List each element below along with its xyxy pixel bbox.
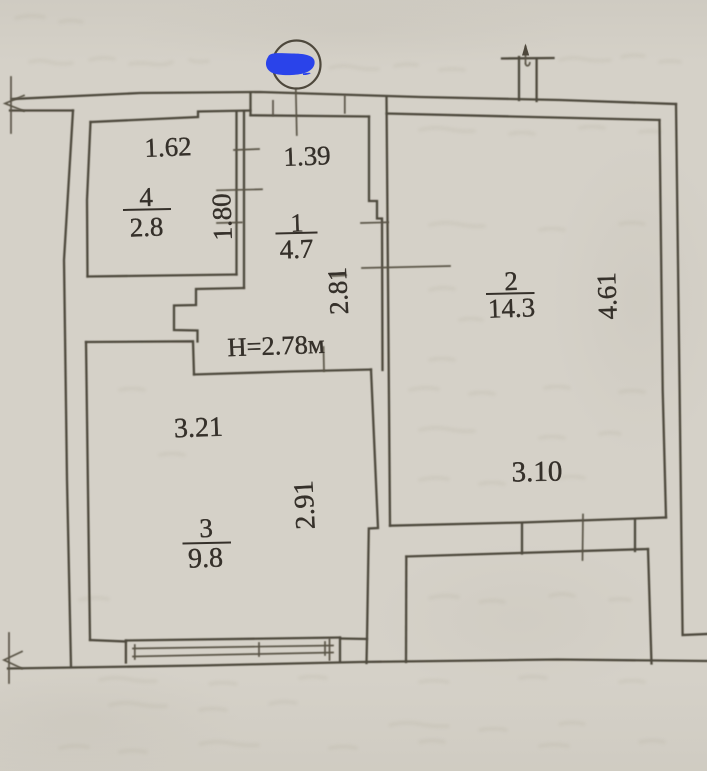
svg-text:1.80: 1.80 — [206, 193, 238, 241]
svg-text:3.21: 3.21 — [173, 412, 223, 445]
svg-text:2.8: 2.8 — [129, 211, 164, 242]
svg-text:4: 4 — [139, 182, 154, 212]
svg-text:2.81: 2.81 — [322, 267, 354, 316]
svg-text:2.91: 2.91 — [288, 480, 322, 531]
svg-text:Н=2.78м: Н=2.78м — [227, 329, 325, 362]
svg-text:3: 3 — [199, 513, 214, 543]
svg-text:1.62: 1.62 — [144, 131, 192, 163]
svg-text:1.39: 1.39 — [283, 140, 331, 172]
svg-text:2: 2 — [504, 266, 519, 296]
svg-text:4.61: 4.61 — [591, 272, 623, 320]
svg-text:14.3: 14.3 — [487, 292, 535, 324]
svg-text:4.7: 4.7 — [279, 233, 314, 264]
svg-text:3.10: 3.10 — [511, 456, 562, 489]
svg-text:9.8: 9.8 — [187, 542, 223, 574]
